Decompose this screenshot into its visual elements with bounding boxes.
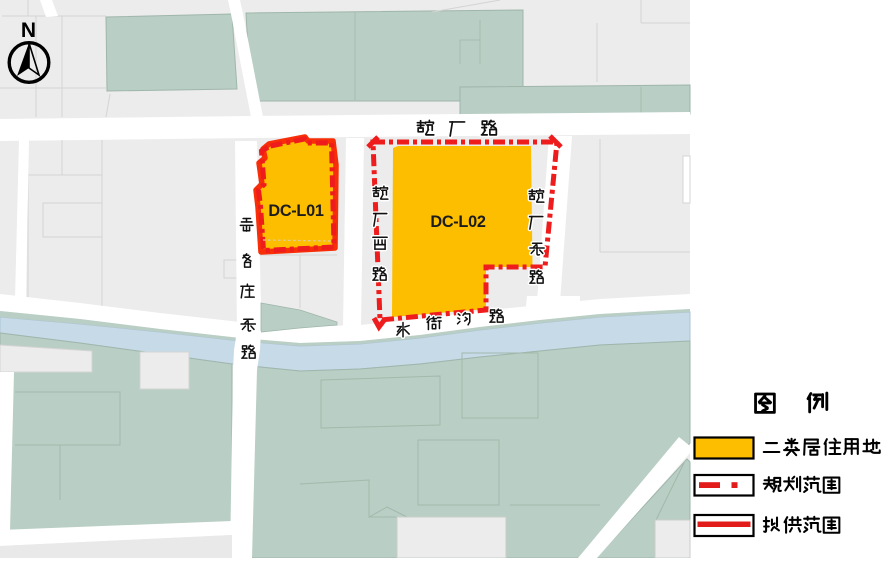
svg-text:DC-L01: DC-L01 — [268, 202, 323, 220]
svg-text:DC-L02: DC-L02 — [430, 213, 485, 231]
svg-text:N: N — [21, 19, 36, 42]
